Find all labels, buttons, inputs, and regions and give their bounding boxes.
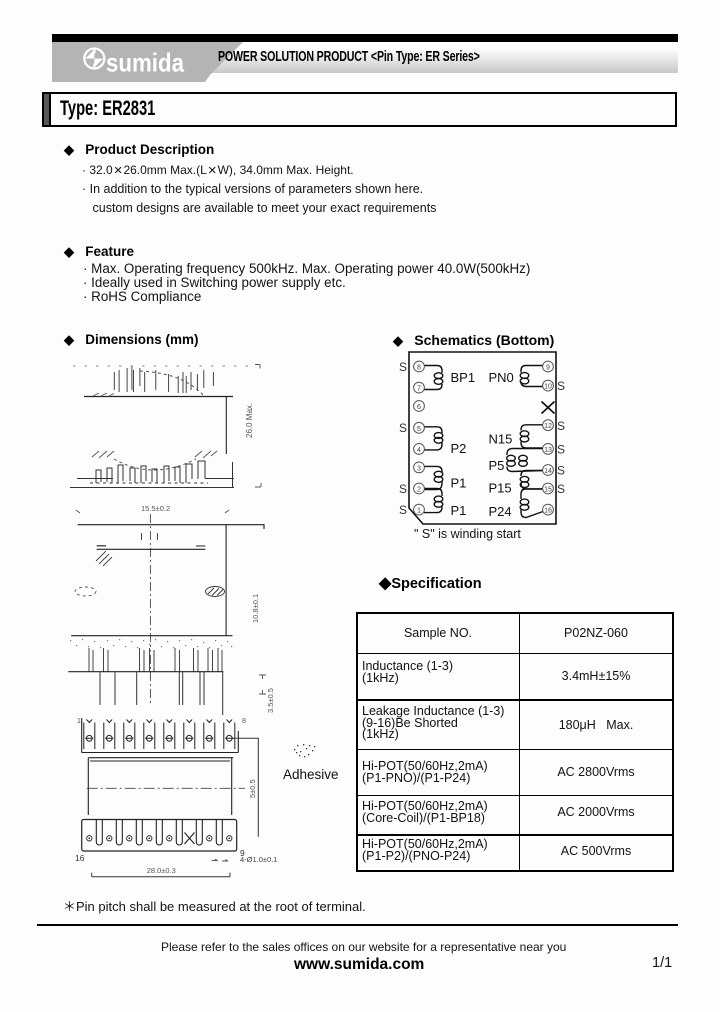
svg-text:PN0: PN0 [489,370,514,385]
svg-text:S: S [399,503,407,517]
svg-text:5: 5 [417,426,421,433]
svg-text:1: 1 [77,718,81,725]
svg-text:S: S [557,464,565,478]
svg-text:4-Ø1.0±0.1: 4-Ø1.0±0.1 [240,855,277,864]
svg-text:13: 13 [544,447,552,454]
svg-text:Adhesive: Adhesive [283,767,339,782]
svg-text:10: 10 [544,384,552,391]
svg-text:S: S [399,360,407,374]
svg-text:P2: P2 [451,441,467,456]
svg-text:P1: P1 [451,476,467,491]
svg-text:3: 3 [417,465,421,472]
svg-text:15: 15 [544,487,552,494]
svg-text:sumida: sumida [106,48,184,78]
svg-text:S: S [557,379,565,393]
svg-text:S: S [557,482,565,496]
svg-text:28.0±0.3: 28.0±0.3 [147,866,176,875]
svg-text:16: 16 [75,853,85,863]
svg-text:S: S [399,482,407,496]
svg-text:4: 4 [417,447,421,454]
svg-text:2: 2 [417,487,421,494]
svg-text:P5: P5 [489,458,505,473]
svg-text:16: 16 [544,508,552,515]
svg-text:3.5±0.5: 3.5±0.5 [266,688,275,713]
svg-text:7: 7 [417,386,421,393]
svg-text:N15: N15 [489,432,513,447]
svg-text:14: 14 [544,468,552,475]
svg-text:8: 8 [417,365,421,372]
svg-text:S: S [557,419,565,433]
svg-text:1: 1 [417,508,421,515]
svg-text:P1: P1 [451,503,467,518]
svg-text:9: 9 [546,365,550,372]
svg-text:S: S [399,421,407,435]
svg-text:S: S [557,443,565,457]
svg-text:15.5±0.2: 15.5±0.2 [141,504,170,513]
svg-text:6: 6 [417,404,421,411]
svg-text:P24: P24 [489,504,512,519]
svg-text:P15: P15 [489,481,512,496]
svg-text:8: 8 [242,718,246,725]
svg-text:10.8±0.1: 10.8±0.1 [251,594,260,623]
svg-text:26.0 Max.: 26.0 Max. [245,403,254,438]
svg-text:BP1: BP1 [451,370,476,385]
svg-text:5±0.5: 5±0.5 [248,779,257,798]
svg-text:12: 12 [544,423,552,430]
